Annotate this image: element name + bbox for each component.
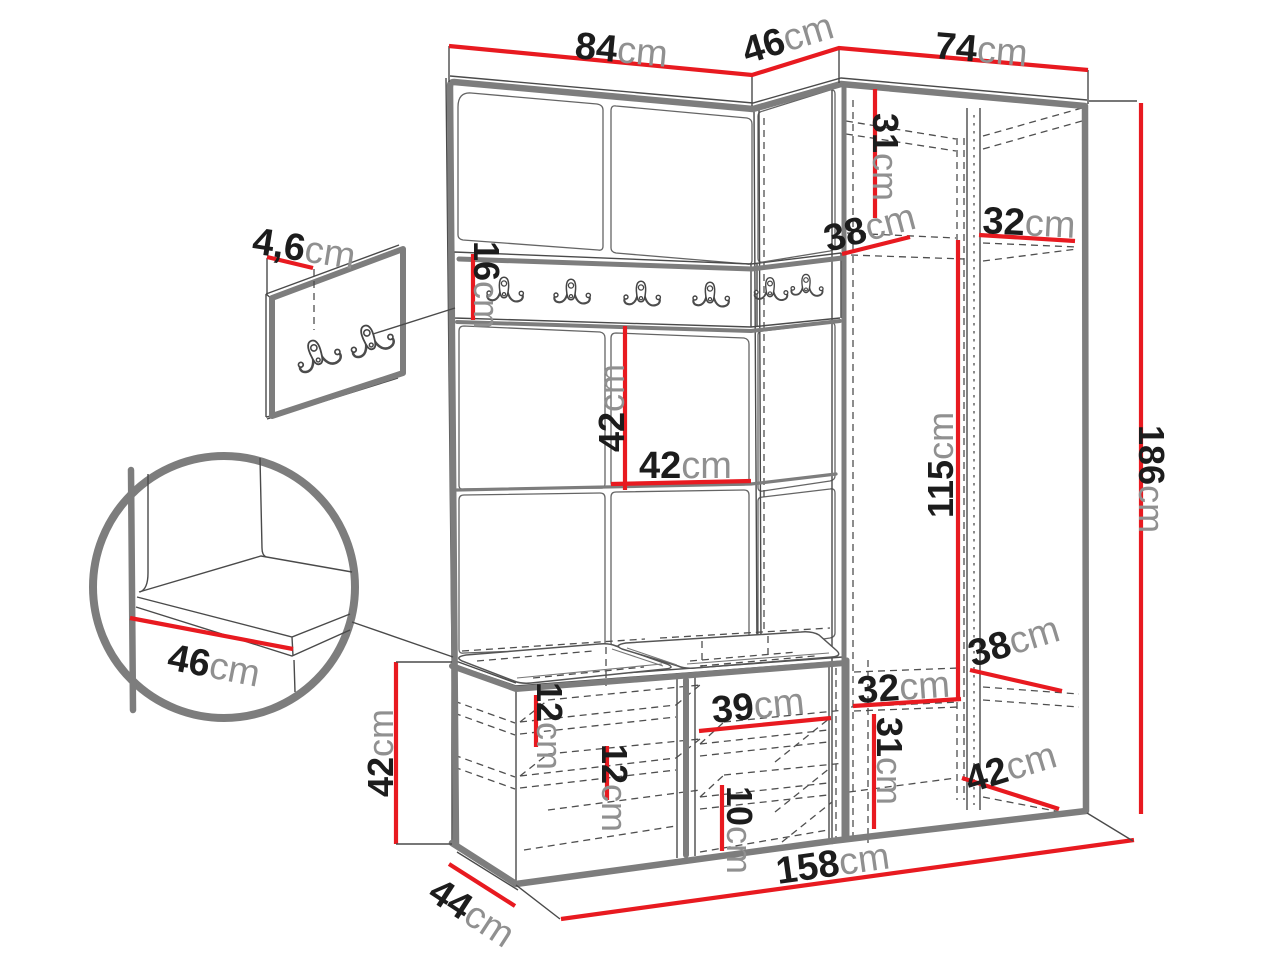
svg-text:115cm: 115cm — [920, 412, 961, 518]
svg-text:31cm: 31cm — [869, 717, 910, 805]
svg-text:42cm: 42cm — [360, 709, 401, 797]
svg-text:10cm: 10cm — [719, 786, 760, 874]
svg-text:16cm: 16cm — [466, 241, 507, 329]
svg-text:31cm: 31cm — [865, 113, 906, 201]
svg-text:12cm: 12cm — [594, 744, 635, 832]
svg-text:186cm: 186cm — [1131, 425, 1172, 533]
svg-text:32cm: 32cm — [856, 664, 952, 712]
svg-text:42cm: 42cm — [639, 445, 732, 487]
svg-text:12cm: 12cm — [529, 682, 570, 770]
svg-text:84cm: 84cm — [573, 25, 670, 76]
svg-text:42cm: 42cm — [591, 364, 632, 452]
svg-text:32cm: 32cm — [982, 200, 1077, 247]
svg-text:74cm: 74cm — [933, 25, 1029, 75]
